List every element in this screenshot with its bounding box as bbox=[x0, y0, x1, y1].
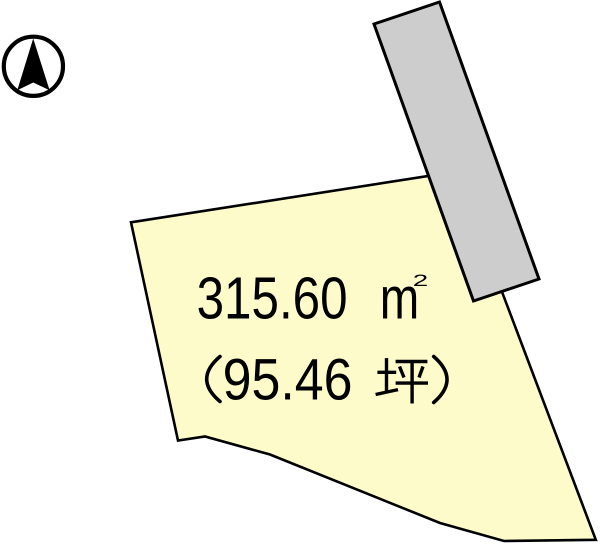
svg-text:95.46: 95.46 bbox=[223, 348, 353, 413]
svg-text:2: 2 bbox=[413, 271, 428, 290]
svg-text:315.60: 315.60 bbox=[197, 264, 348, 331]
